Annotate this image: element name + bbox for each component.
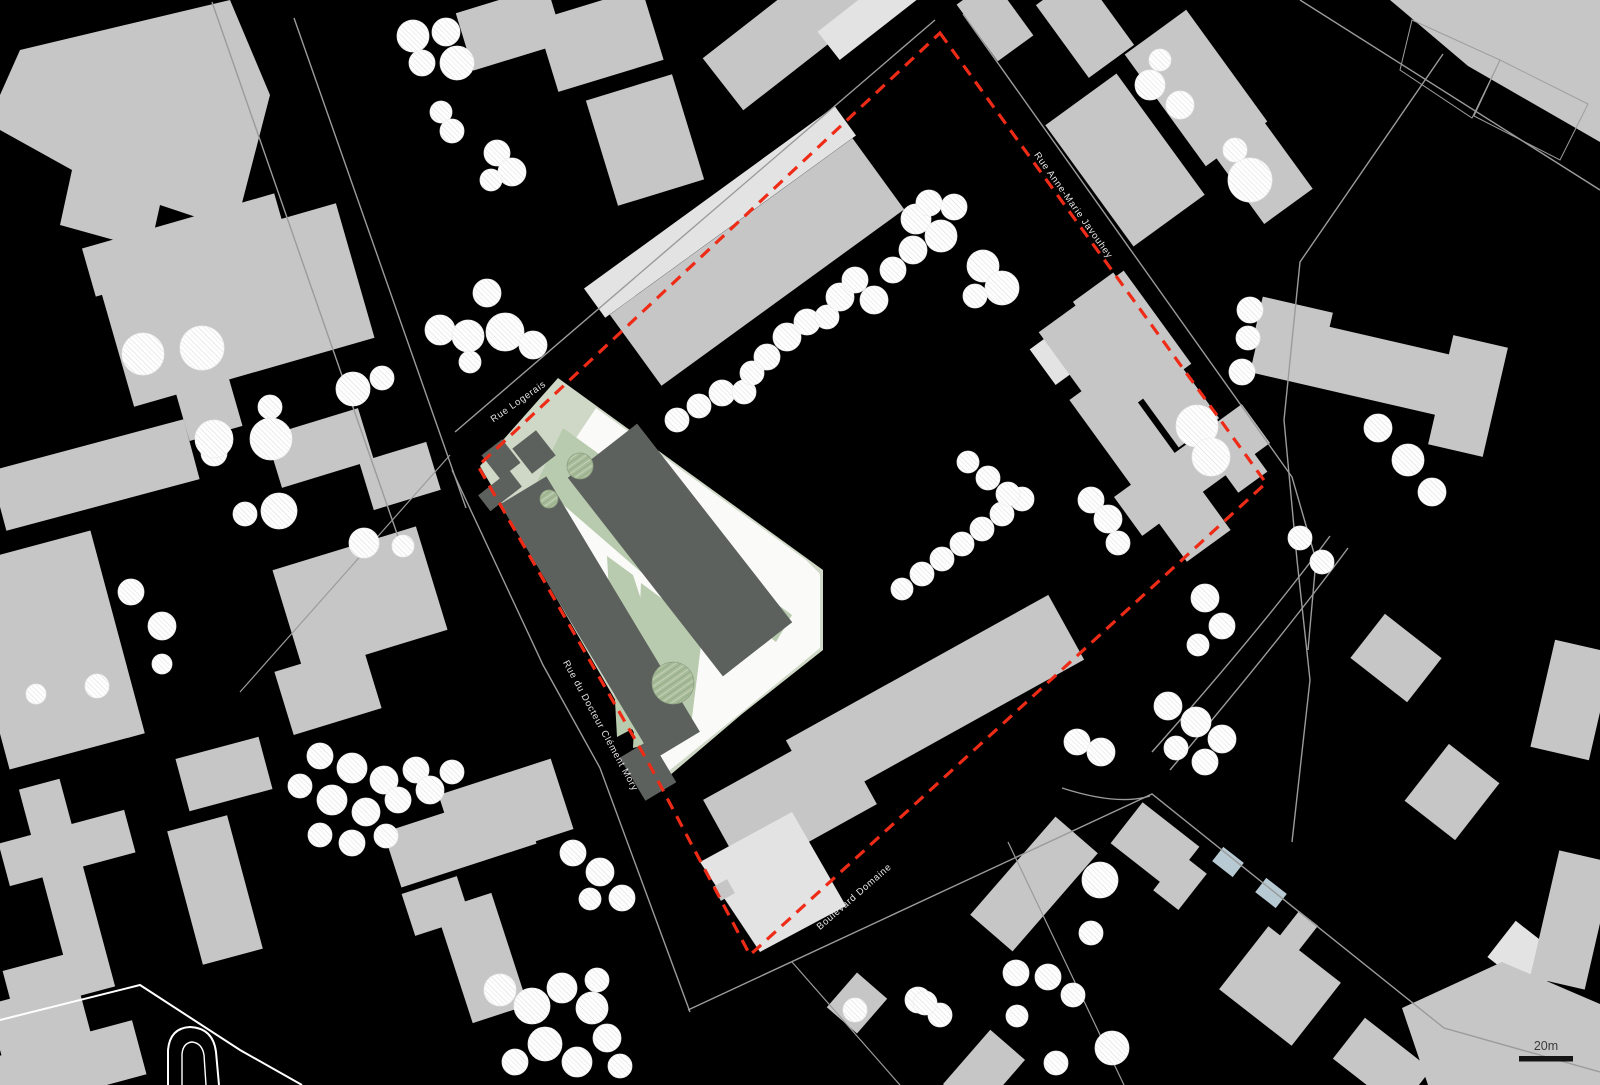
tree-icon xyxy=(385,787,411,813)
tree-icon xyxy=(1003,960,1029,986)
tree-icon xyxy=(425,315,455,345)
tree-icon xyxy=(440,46,474,80)
scale-bar-rule xyxy=(1519,1056,1573,1062)
tree-icon xyxy=(970,517,994,541)
green-tree-icon xyxy=(567,453,593,479)
tree-icon xyxy=(665,408,689,432)
tree-icon xyxy=(585,968,609,992)
tree-icon xyxy=(250,418,292,460)
tree-icon xyxy=(1079,921,1103,945)
tree-icon xyxy=(560,840,586,866)
tree-icon xyxy=(1094,505,1122,533)
tree-icon xyxy=(925,220,957,252)
tree-icon xyxy=(687,394,711,418)
tree-icon xyxy=(409,50,435,76)
tree-icon xyxy=(1149,49,1171,71)
tree-icon xyxy=(473,279,501,307)
tree-icon xyxy=(1236,326,1260,350)
tree-icon xyxy=(85,674,109,698)
tree-icon xyxy=(514,988,550,1024)
tree-icon xyxy=(452,320,484,352)
tree-icon xyxy=(339,830,365,856)
tree-icon xyxy=(416,776,444,804)
tree-icon xyxy=(288,774,312,798)
tree-icon xyxy=(370,366,394,390)
tree-icon xyxy=(754,344,780,370)
tree-icon xyxy=(152,654,172,674)
tree-icon xyxy=(593,1024,621,1052)
tree-icon xyxy=(1229,359,1255,385)
tree-icon xyxy=(1035,964,1061,990)
tree-icon xyxy=(1192,749,1218,775)
tree-icon xyxy=(579,888,601,910)
scale-bar-label: 20m xyxy=(1534,1039,1558,1053)
tree-icon xyxy=(1288,526,1312,550)
tree-icon xyxy=(502,1049,528,1075)
tree-icon xyxy=(1223,138,1247,162)
tree-icon xyxy=(930,547,954,571)
tree-icon xyxy=(308,823,332,847)
tree-icon xyxy=(374,824,398,848)
tree-icon xyxy=(976,466,1000,490)
tree-icon xyxy=(1064,729,1090,755)
tree-icon xyxy=(118,579,144,605)
tree-icon xyxy=(985,271,1019,305)
tree-icon xyxy=(609,885,635,911)
tree-icon xyxy=(1106,531,1130,555)
tree-icon xyxy=(891,578,913,600)
tree-icon xyxy=(1191,584,1219,612)
tree-icon xyxy=(233,502,257,526)
tree-icon xyxy=(880,257,906,283)
tree-icon xyxy=(860,286,888,314)
tree-icon xyxy=(1087,738,1115,766)
tree-icon xyxy=(1418,478,1446,506)
tree-icon xyxy=(528,1027,562,1061)
tree-icon xyxy=(459,351,481,373)
tree-icon xyxy=(307,743,333,769)
tree-icon xyxy=(576,992,608,1024)
map-canvas: Rue Logerais Rue Anne-Marie Javouhey Rue… xyxy=(0,0,1600,1085)
tree-icon xyxy=(843,998,867,1022)
tree-icon xyxy=(195,420,233,458)
tree-icon xyxy=(1164,736,1188,760)
tree-icon xyxy=(916,190,942,216)
tree-icon xyxy=(337,753,367,783)
tree-icon xyxy=(392,535,414,557)
tree-icon xyxy=(440,760,464,784)
tree-icon xyxy=(899,236,927,264)
tree-icon xyxy=(1228,158,1272,202)
tree-icon xyxy=(950,532,974,556)
tree-icon xyxy=(317,785,347,815)
tree-icon xyxy=(432,18,460,46)
tree-icon xyxy=(352,798,380,826)
tree-icon xyxy=(486,313,524,351)
site-plan-map: Rue Logerais Rue Anne-Marie Javouhey Rue… xyxy=(0,0,1600,1085)
tree-icon xyxy=(122,333,164,375)
tree-icon xyxy=(1209,613,1235,639)
tree-icon xyxy=(1310,550,1334,574)
tree-icon xyxy=(1044,1051,1068,1075)
tree-icon xyxy=(963,284,987,308)
tree-icon xyxy=(1392,444,1424,476)
tree-icon xyxy=(910,562,934,586)
tree-icon xyxy=(440,119,464,143)
tree-icon xyxy=(1166,91,1194,119)
tree-icon xyxy=(148,612,176,640)
tree-icon xyxy=(608,1054,632,1078)
tree-icon xyxy=(1192,438,1230,476)
tree-icon xyxy=(842,267,868,293)
tree-icon xyxy=(1082,862,1118,898)
tree-icon xyxy=(996,482,1020,506)
tree-icon xyxy=(1364,414,1392,442)
tree-icon xyxy=(957,451,979,473)
tree-icon xyxy=(586,858,614,886)
tree-icon xyxy=(397,20,429,52)
tree-icon xyxy=(1006,1005,1028,1027)
tree-icon xyxy=(1187,634,1209,656)
tree-icon xyxy=(519,331,547,359)
tree-icon xyxy=(1095,1031,1129,1065)
tree-icon xyxy=(1237,297,1263,323)
tree-icon xyxy=(1208,725,1236,753)
tree-icon xyxy=(1061,983,1085,1007)
tree-icon xyxy=(258,395,282,419)
tree-icon xyxy=(562,1047,592,1077)
tree-icon xyxy=(26,684,46,704)
tree-icon xyxy=(336,372,370,406)
tree-icon xyxy=(913,991,937,1015)
green-tree-icon xyxy=(652,662,694,704)
tree-icon xyxy=(1135,70,1165,100)
tree-icon xyxy=(480,169,502,191)
tree-icon xyxy=(180,326,224,370)
tree-icon xyxy=(941,194,967,220)
tree-icon xyxy=(1154,692,1182,720)
tree-icon xyxy=(349,528,379,558)
tree-icon xyxy=(547,973,577,1003)
green-tree-icon xyxy=(540,490,558,508)
tree-icon xyxy=(709,380,735,406)
tree-icon xyxy=(261,493,297,529)
tree-icon xyxy=(484,974,516,1006)
tree-icon xyxy=(1181,707,1211,737)
